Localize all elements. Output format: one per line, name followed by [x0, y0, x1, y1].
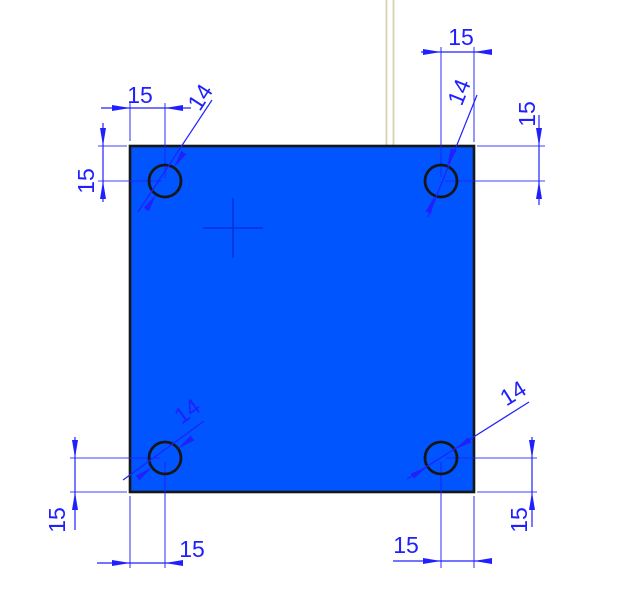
arrowhead-icon: [112, 560, 130, 566]
dimension-bottom-right-vertical[interactable]: 15: [506, 437, 535, 533]
arrowhead-icon: [72, 440, 78, 458]
dimension-label[interactable]: 15: [506, 507, 532, 533]
diameter-label[interactable]: 14: [495, 375, 531, 411]
arrowhead-icon: [423, 49, 441, 55]
dimension-label[interactable]: 15: [127, 82, 153, 108]
arrowhead-icon: [536, 181, 542, 199]
dimension-label[interactable]: 15: [514, 101, 540, 127]
dimension-top-left-horizontal[interactable]: 15: [101, 82, 191, 111]
plate-face[interactable]: [130, 146, 474, 492]
arrowhead-icon: [423, 558, 441, 564]
dimension-label[interactable]: 15: [179, 536, 205, 562]
diameter-label[interactable]: 14: [182, 79, 218, 115]
arrowhead-icon: [72, 492, 78, 510]
dimension-label[interactable]: 15: [44, 507, 70, 533]
arrowhead-icon: [474, 49, 492, 55]
diameter-label[interactable]: 14: [442, 75, 476, 109]
dimension-bottom-left-vertical[interactable]: 15: [44, 437, 78, 533]
arrowhead-icon: [536, 128, 542, 146]
arrowhead-icon: [529, 440, 535, 458]
dimension-label[interactable]: 15: [73, 168, 99, 194]
arrowhead-icon: [100, 181, 106, 199]
dimension-top-left-vertical[interactable]: 15: [73, 123, 106, 202]
dimension-label[interactable]: 15: [393, 532, 419, 558]
construction-lines: [387, 0, 394, 146]
dimension-label[interactable]: 15: [448, 24, 474, 50]
cad-drawing-canvas: 15 15 15 15 15 15 15: [0, 0, 637, 611]
dimension-bottom-left-horizontal[interactable]: 15: [97, 536, 205, 566]
arrowhead-icon: [100, 128, 106, 146]
dimension-top-right-vertical[interactable]: 15: [514, 101, 542, 205]
dimension-top-right-horizontal[interactable]: 15: [421, 24, 492, 55]
dimension-bottom-right-horizontal[interactable]: 15: [393, 532, 492, 564]
techdraw-view: 15 15 15 15 15 15 15: [0, 0, 637, 611]
arrowhead-icon: [165, 105, 183, 111]
arrowhead-icon: [474, 558, 492, 564]
